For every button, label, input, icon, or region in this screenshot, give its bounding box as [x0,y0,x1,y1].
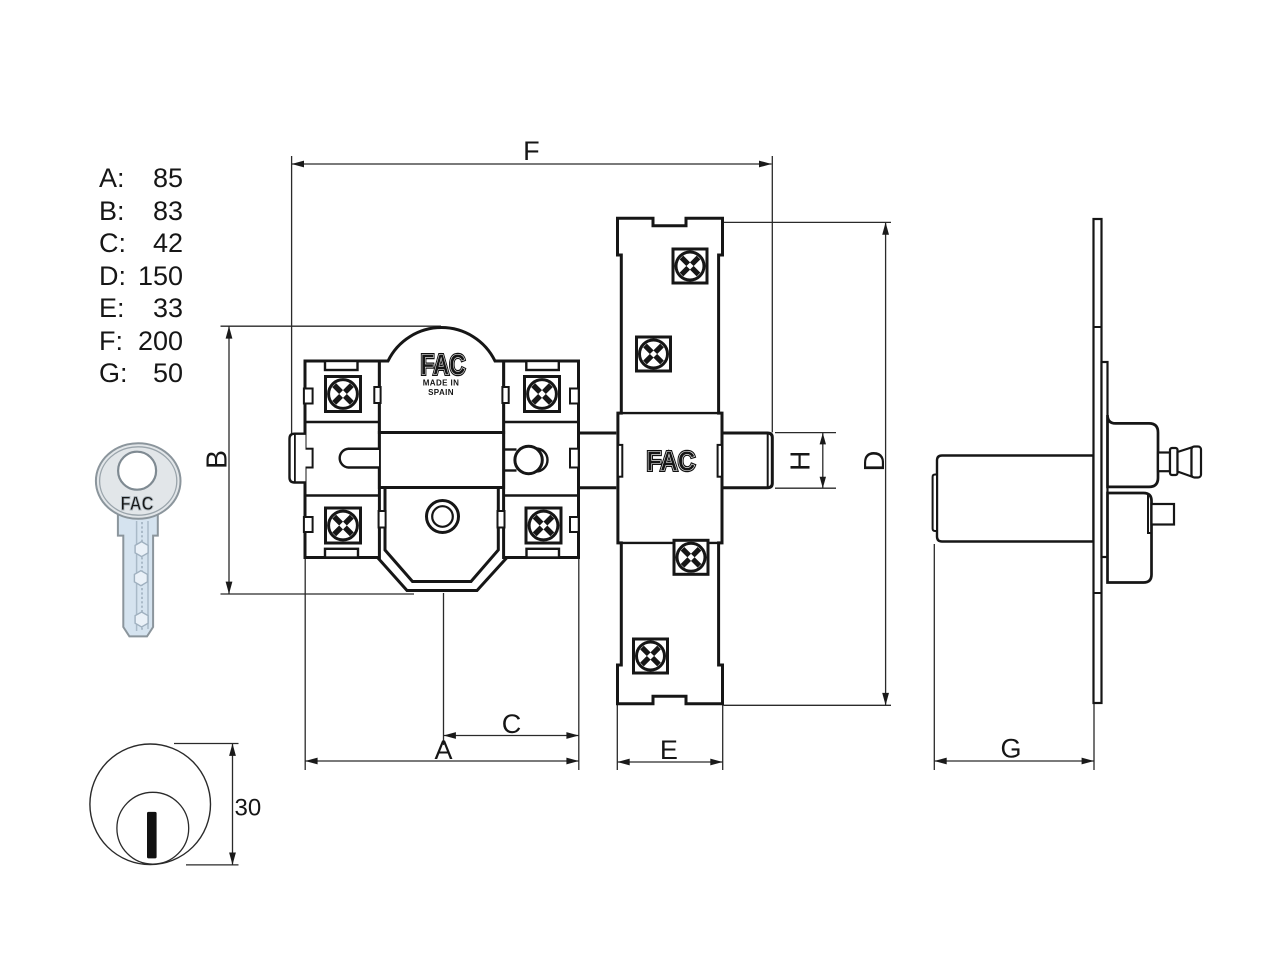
svg-text:150: 150 [138,261,183,291]
svg-text:E:: E: [99,293,125,323]
svg-text:G:: G: [99,358,128,388]
svg-text:SPAIN: SPAIN [428,388,454,397]
svg-text:G: G [1000,734,1021,764]
svg-text:83: 83 [153,196,183,226]
svg-text:E: E [660,735,678,765]
svg-text:30: 30 [235,795,262,822]
svg-text:FAC: FAC [647,446,696,477]
svg-text:200: 200 [138,326,183,356]
svg-text:F: F [523,136,540,166]
svg-text:C:: C: [99,228,126,258]
svg-text:MADE IN: MADE IN [423,379,460,388]
svg-text:FAC: FAC [121,494,154,515]
svg-text:B:: B: [99,196,125,226]
svg-text:A:: A: [99,163,125,193]
svg-text:A: A [434,735,452,765]
svg-text:FAC: FAC [421,350,466,382]
svg-text:85: 85 [153,163,183,193]
svg-text:H: H [785,451,816,471]
svg-text:33: 33 [153,293,183,323]
svg-text:42: 42 [153,228,183,258]
svg-text:C: C [502,709,522,739]
svg-text:B: B [201,450,233,469]
svg-text:50: 50 [153,358,183,388]
svg-text:F:: F: [99,326,123,356]
svg-text:D:: D: [99,261,126,291]
svg-text:D: D [859,451,891,472]
